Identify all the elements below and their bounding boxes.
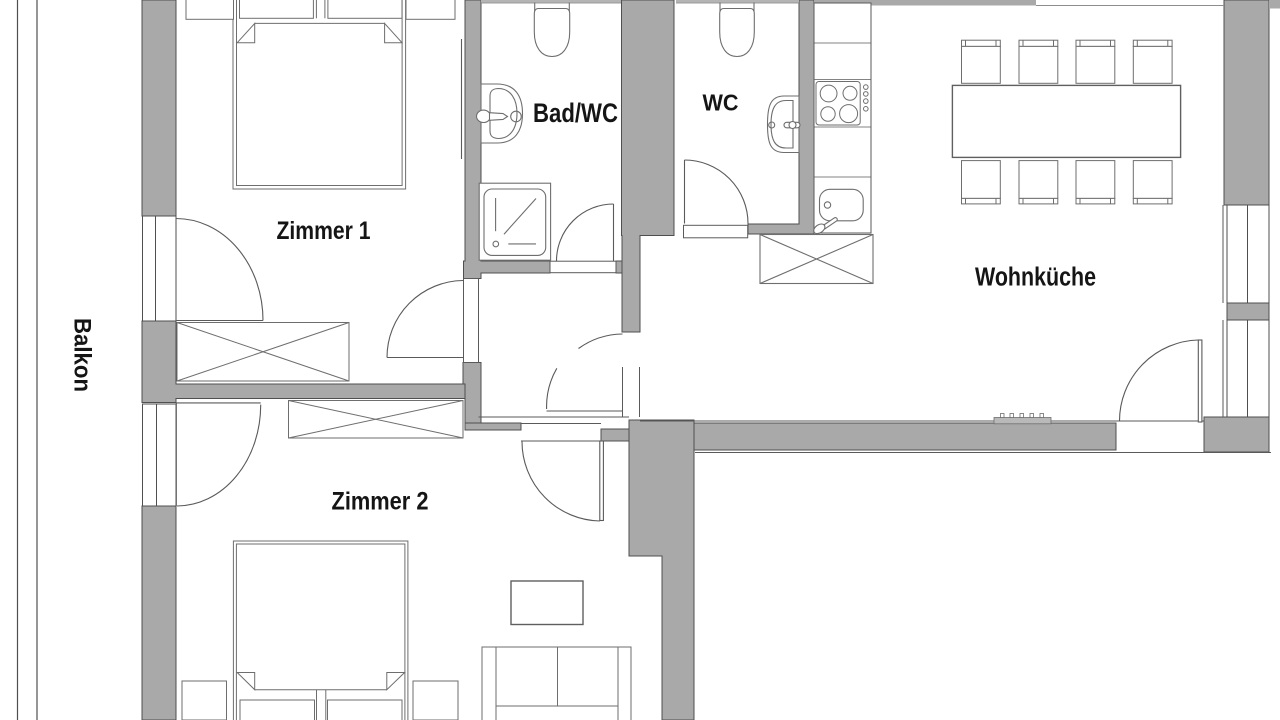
svg-text:Zimmer 2: Zimmer 2 [332,488,429,516]
svg-text:Wohnküche: Wohnküche [975,264,1096,292]
svg-text:Bad/WC: Bad/WC [533,98,618,128]
svg-text:Balkon: Balkon [69,318,96,392]
svg-text:WC: WC [703,90,739,116]
svg-text:Zimmer 1: Zimmer 1 [277,217,371,245]
